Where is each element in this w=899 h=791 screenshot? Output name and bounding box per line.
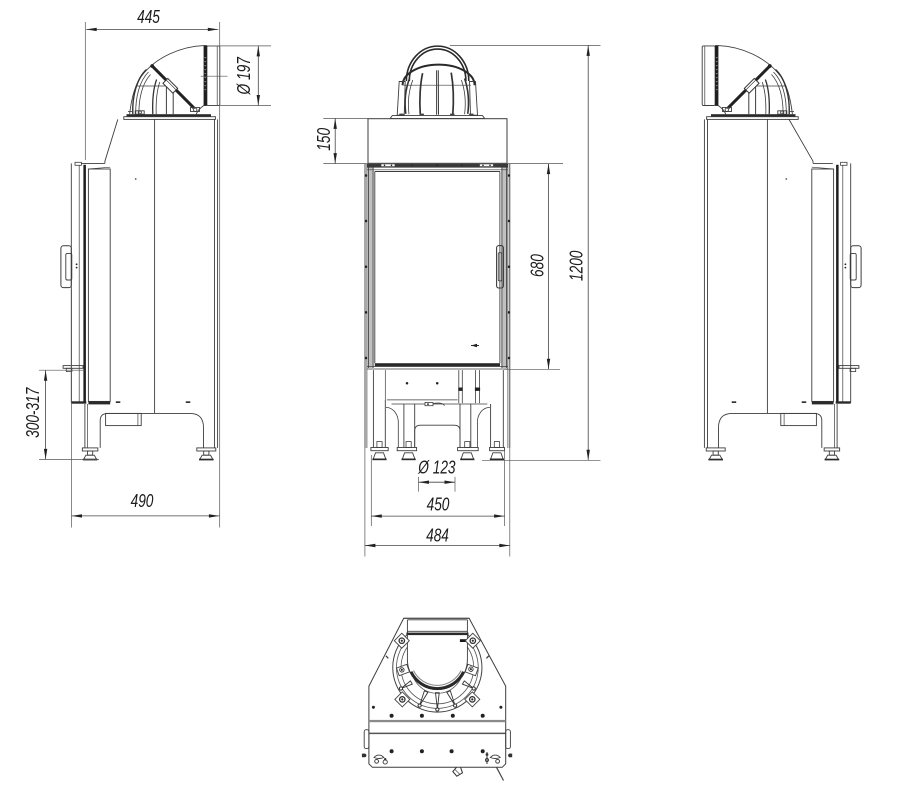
svg-text:150: 150 (314, 128, 334, 151)
svg-text:484: 484 (426, 525, 449, 545)
svg-text:680: 680 (528, 254, 548, 277)
svg-text:445: 445 (137, 7, 161, 27)
svg-text:300-317: 300-317 (23, 387, 43, 438)
svg-text:Ø 197: Ø 197 (234, 56, 254, 95)
svg-text:1200: 1200 (566, 251, 586, 281)
svg-text:490: 490 (131, 491, 154, 511)
svg-text:Ø 123: Ø 123 (417, 457, 455, 477)
svg-text:450: 450 (427, 494, 450, 514)
